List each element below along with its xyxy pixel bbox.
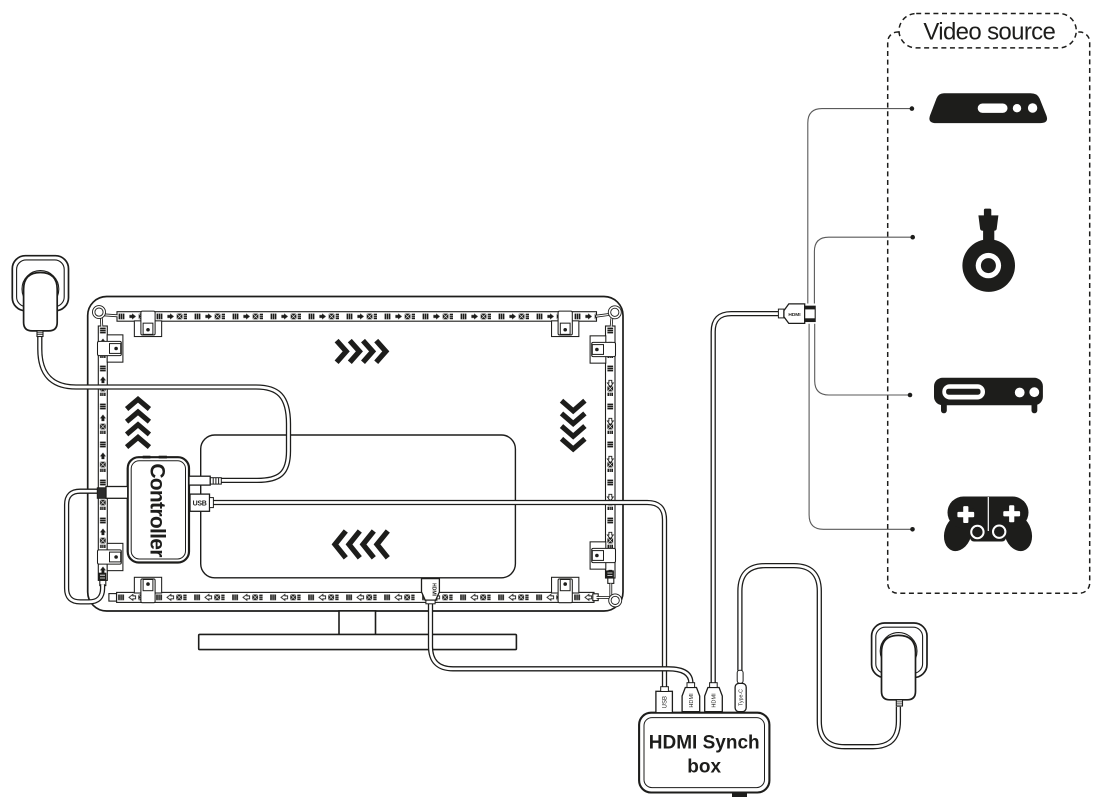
svg-text:USB: USB <box>193 501 207 508</box>
svg-text:Type-C: Type-C <box>739 689 745 706</box>
svg-text:HDMI: HDMI <box>431 583 437 596</box>
svg-text:HDMI Synch: HDMI Synch <box>649 733 760 754</box>
svg-text:USB: USB <box>662 696 668 708</box>
svg-text:HDMI: HDMI <box>689 693 695 708</box>
svg-text:box: box <box>687 757 721 778</box>
svg-text:Controller: Controller <box>145 463 168 557</box>
svg-text:Video source: Video source <box>923 19 1055 46</box>
svg-text:HDMI: HDMI <box>788 312 801 318</box>
svg-text:HDMI: HDMI <box>712 693 718 708</box>
